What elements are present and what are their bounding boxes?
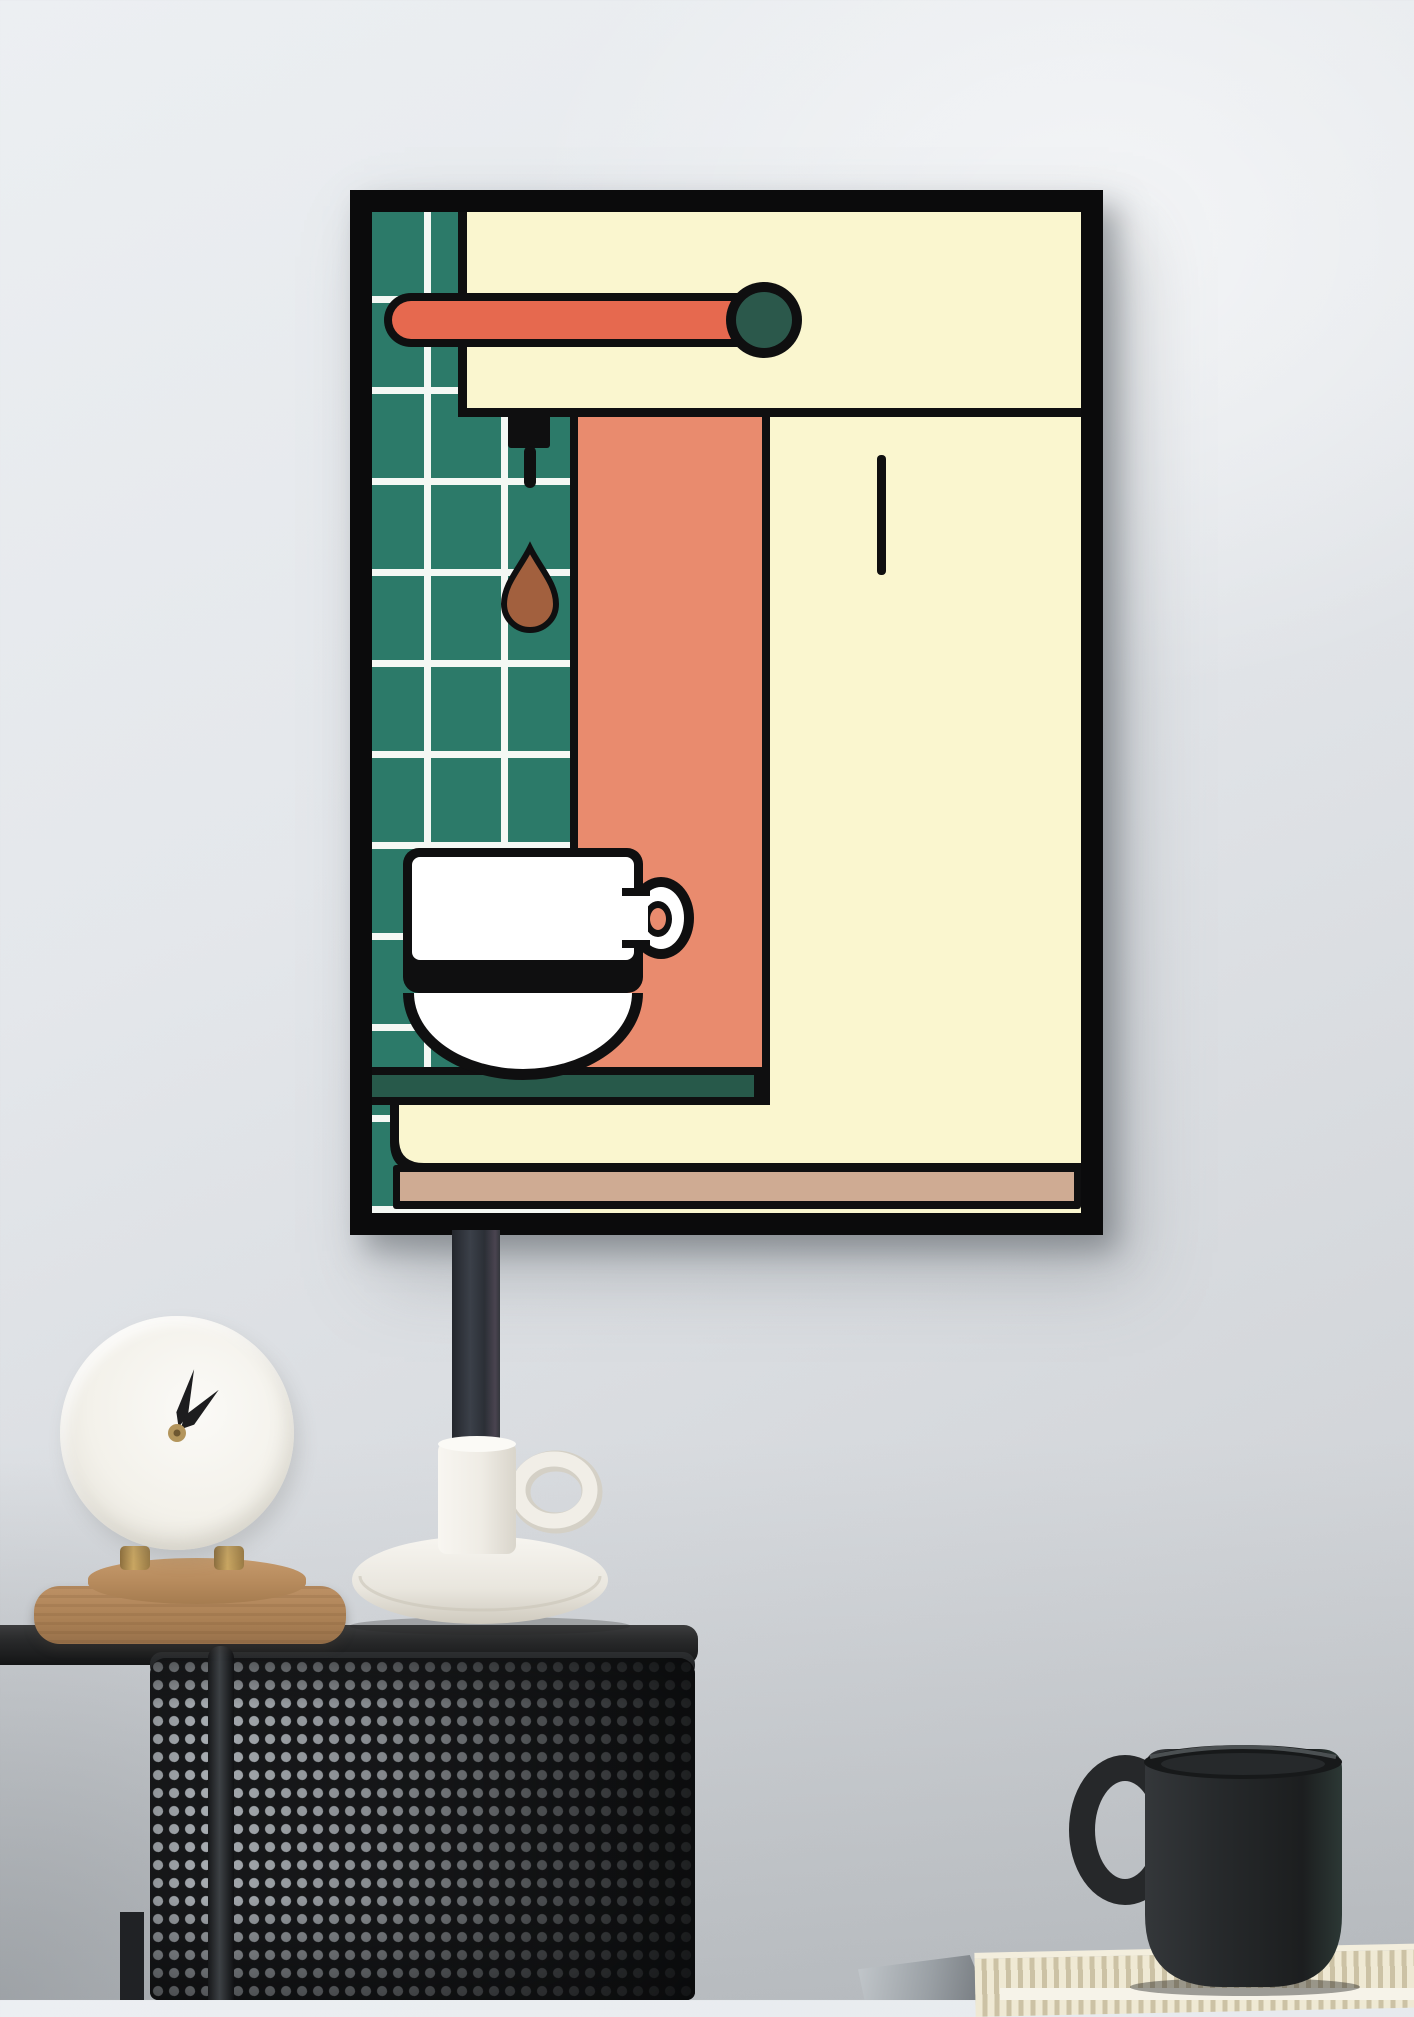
black-mug [1020, 1735, 1380, 2000]
clock-hands [60, 1316, 294, 1550]
lever-knob [736, 292, 792, 348]
interior-photo-scene: { "scene": { "type": "photograph", "desc… [0, 0, 1414, 2000]
mug-body [1145, 1749, 1342, 1987]
table-far-leg [120, 1912, 144, 2000]
ceramic-chamberstick [340, 1430, 640, 1635]
framed-poster [350, 190, 1103, 1235]
poster-artwork [372, 212, 1081, 1213]
black-taper-candle [452, 1230, 500, 1448]
machine-body-detail-line [877, 455, 886, 575]
table-front-leg [208, 1646, 234, 2000]
clock [60, 1316, 294, 1550]
machine-base [390, 1105, 1081, 1172]
counter-edge [393, 1165, 1081, 1209]
cup-handle [622, 877, 694, 959]
holder-socket [438, 1442, 516, 1554]
steam-lever [384, 282, 802, 358]
